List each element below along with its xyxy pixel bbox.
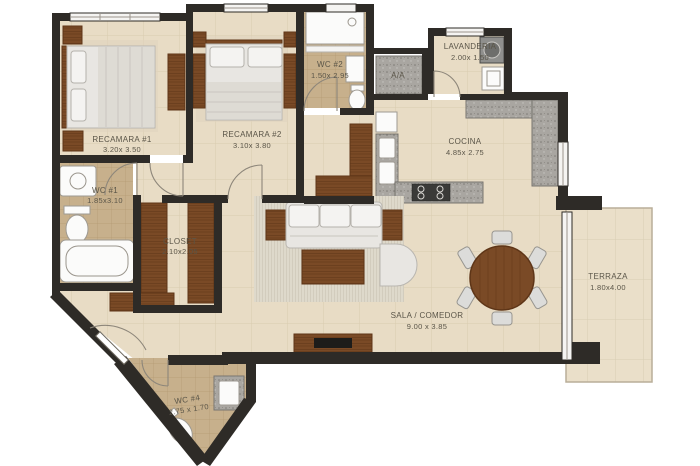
coffee-table [302,250,364,284]
shower-curb [306,46,364,52]
built-in-closet [284,54,296,108]
pillow [71,89,86,121]
console-cabinet [316,176,372,196]
dims-cocina: 4.85x 2.75 [446,148,484,157]
wall-segment [133,305,222,313]
wall-segment [428,28,434,94]
toilet-bowl [349,90,365,110]
fridge [376,112,397,132]
sink [379,138,395,158]
label-sala: SALA / COMEDOR [391,311,464,320]
wall-segment [214,203,222,305]
dims-recamara1: 3.20x 3.50 [103,145,141,154]
sofa-cushion [320,205,350,227]
dining-chair [492,312,512,325]
vanity-sink [219,381,239,405]
tv [314,338,352,348]
floor-plan-page: RECAMARA #1 3.20x 3.50 RECAMARA #2 3.10x… [0,0,700,466]
dims-wc1: 1.85x3.10 [87,196,123,205]
label-wc2: WC #2 [317,60,343,69]
label-cocina: COCINA [449,137,482,146]
nightstand [63,131,83,151]
toilet-tank [64,206,90,214]
wall-segment [222,352,568,364]
pillow [248,47,282,67]
dims-recamara2: 3.10x 3.80 [233,141,271,150]
utility-sink [482,67,504,90]
wall-segment [340,108,374,115]
shower [306,12,364,44]
window-wc2 [326,4,356,12]
sofa-cushion [351,205,381,227]
bed-recamara2 [193,32,296,122]
nightstand [63,26,82,44]
wall-segment [304,196,374,204]
wall-segment [504,28,512,100]
side-table [380,210,402,240]
wall-segment [422,48,428,100]
dining-chair [492,231,512,244]
toilet-bowl [66,215,88,243]
label-wc1: WC #1 [92,186,118,195]
wall-segment [246,356,256,402]
nightstand [193,32,206,47]
wall-segment [460,94,508,100]
built-in-closet [193,54,205,108]
side-table [266,210,286,240]
wall-segment [52,283,140,291]
wall-segment [374,48,428,54]
sink [379,162,395,184]
label-terraza: TERRAZA [588,272,628,281]
wall-segment [296,4,304,203]
wall-segment [556,196,602,210]
label-aa: A/A [391,71,405,80]
dims-wc2: 1.50x 2.95 [311,71,349,80]
dresser [168,54,185,110]
wall-segment [186,12,193,163]
vanity-sink [60,166,96,196]
dims-terraza: 1.80x4.00 [590,283,626,292]
wall-segment [558,92,568,142]
wall-segment [52,155,150,163]
dims-closet: 2.10x2.05 [162,247,198,256]
floor-plan-svg: RECAMARA #1 3.20x 3.50 RECAMARA #2 3.10x… [0,0,700,466]
stove [412,184,450,201]
armchair [380,244,417,286]
pillow [71,51,86,83]
dims-lavanderia: 2.00x 1.50 [451,53,489,62]
wall-segment [374,94,428,100]
wall-segment [168,355,228,365]
wall-segment [262,195,304,203]
label-lavanderia: LAVANDERIA [444,42,497,51]
label-recamara1: RECAMARA #1 [92,135,152,144]
wall-segment [183,155,193,163]
label-recamara2: RECAMARA #2 [222,130,282,139]
wall-segment [428,28,446,36]
wall-segment [162,195,228,203]
dims-sala: 9.00 x 3.85 [407,322,447,331]
wall-segment [366,4,374,115]
label-closet: CLOSET [163,237,197,246]
blanket [207,82,281,119]
counter-right [532,100,558,186]
pillow [210,47,244,67]
wall-segment [504,92,566,100]
wall-segment [186,4,224,12]
sofa-cushion [289,205,319,227]
headboard [62,46,67,128]
nightstand [284,32,296,47]
